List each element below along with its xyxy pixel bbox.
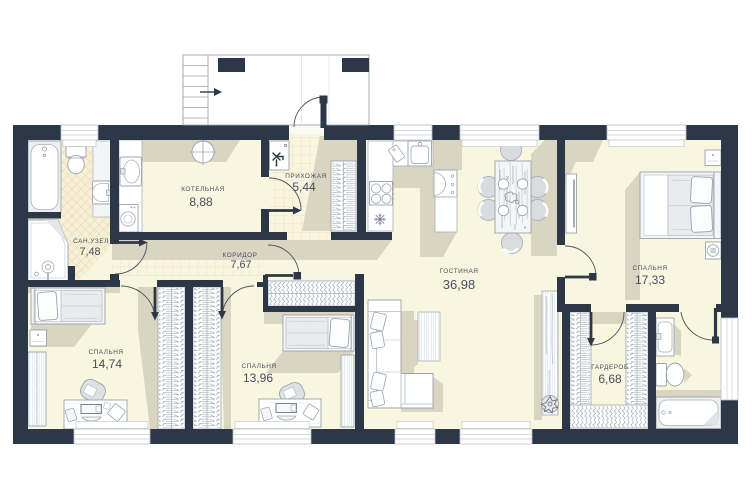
svg-text:6,68: 6,68: [598, 372, 622, 386]
svg-text:ГАРДЕРОБ: ГАРДЕРОБ: [591, 364, 628, 371]
svg-text:17,33: 17,33: [635, 273, 665, 287]
svg-text:13,96: 13,96: [243, 371, 273, 385]
svg-text:СПАЛЬНЯ: СПАЛЬНЯ: [632, 265, 667, 272]
svg-text:СПАЛЬНЯ: СПАЛЬНЯ: [241, 363, 276, 370]
svg-text:СПАЛЬНЯ: СПАЛЬНЯ: [88, 349, 123, 356]
svg-text:САН.УЗЕЛ: САН.УЗЕЛ: [73, 238, 109, 245]
svg-text:7,48: 7,48: [79, 246, 100, 258]
svg-text:5,44: 5,44: [292, 180, 316, 194]
svg-text:КОТЕЛЬНАЯ: КОТЕЛЬНАЯ: [181, 186, 225, 193]
svg-text:8,88: 8,88: [189, 195, 213, 209]
svg-text:ГОСТИНАЯ: ГОСТИНАЯ: [440, 268, 479, 275]
svg-text:ПРИХОЖАЯ: ПРИХОЖАЯ: [285, 173, 327, 180]
svg-text:14,74: 14,74: [92, 357, 122, 371]
svg-text:7,67: 7,67: [230, 259, 251, 271]
svg-text:КОРИДОР: КОРИДОР: [223, 252, 258, 259]
svg-text:36,98: 36,98: [443, 277, 476, 292]
